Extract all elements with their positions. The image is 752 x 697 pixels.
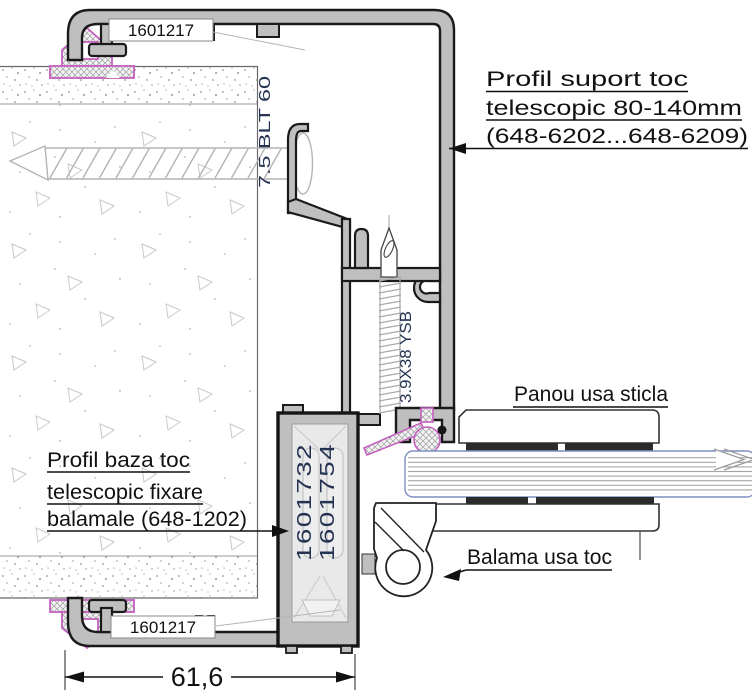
callout-profil-suport: Profil suport toc telescopic 80-140mm (6… — [449, 67, 748, 154]
arrowhead — [443, 569, 461, 581]
bracket-ear — [355, 229, 368, 268]
base-profile-ref-a: 1601732 — [294, 443, 316, 561]
hinge-knuckle — [386, 550, 420, 584]
callout-text-line3: (648-6202...648-6209) — [486, 124, 748, 148]
base-profile-foot-left — [286, 646, 297, 653]
callout-text: Balama usa toc — [467, 545, 612, 569]
gasket-stem — [421, 408, 433, 422]
callout-text-line2: telescopic fixare — [47, 480, 203, 504]
dimension-width: 61,6 — [65, 650, 355, 692]
callout-balama: Balama usa toc — [443, 545, 612, 581]
glazing-gasket-top-left — [466, 443, 558, 451]
glass-clamp-bottom — [432, 504, 659, 531]
door-frame-section-drawing: 1601732 1601754 — [0, 0, 752, 697]
hinge-mount-pad — [362, 554, 375, 574]
callout-text-line1: Profil baza toc — [47, 448, 190, 472]
glass-lamination-lines — [408, 454, 752, 494]
callout-panou-usa: Panou usa sticla — [513, 382, 668, 407]
callout-text: Panou usa sticla — [514, 382, 668, 406]
callout-text-line1: Profil suport toc — [486, 67, 688, 91]
plaster-band-bottom — [0, 556, 258, 598]
frame-screw-spec: 3.9X38 YSB — [398, 311, 415, 403]
wall-screw-spec: 7.5 BLT 60 — [257, 75, 274, 188]
glazing-gasket-bottom-left — [466, 497, 528, 504]
dim-arrowhead-left — [65, 672, 84, 683]
bottom-gasket-clip-number: 1601217 — [130, 618, 196, 637]
callout-text-line3: balamale (648-1202) — [47, 507, 247, 531]
glazing-gasket-bottom-right — [536, 497, 654, 504]
glass-clamp-top — [459, 410, 659, 443]
technical-drawing-page: 1601732 1601754 — [0, 0, 752, 697]
bracket-diagonal — [288, 199, 350, 229]
glazing-gasket-top-right — [565, 443, 653, 451]
base-profile-ref-b: 1601754 — [317, 443, 339, 561]
profile-tab-top — [257, 24, 279, 37]
base-profile-foot-right — [341, 646, 352, 653]
profile-foot-top — [89, 44, 126, 56]
callout-text-line2: telescopic 80-140mm — [486, 96, 742, 120]
glass-door-panel — [405, 410, 752, 560]
gasket-bulb — [414, 427, 440, 453]
top-gasket-clip-number: 1601217 — [128, 21, 194, 40]
dim-arrowhead-right — [336, 672, 355, 683]
dimension-value: 61,6 — [171, 662, 224, 692]
bracket-vertical-wall — [342, 219, 350, 414]
gasket-pin — [438, 426, 447, 435]
profile-foot-stem-bottom — [101, 608, 112, 632]
hinge — [362, 503, 436, 596]
